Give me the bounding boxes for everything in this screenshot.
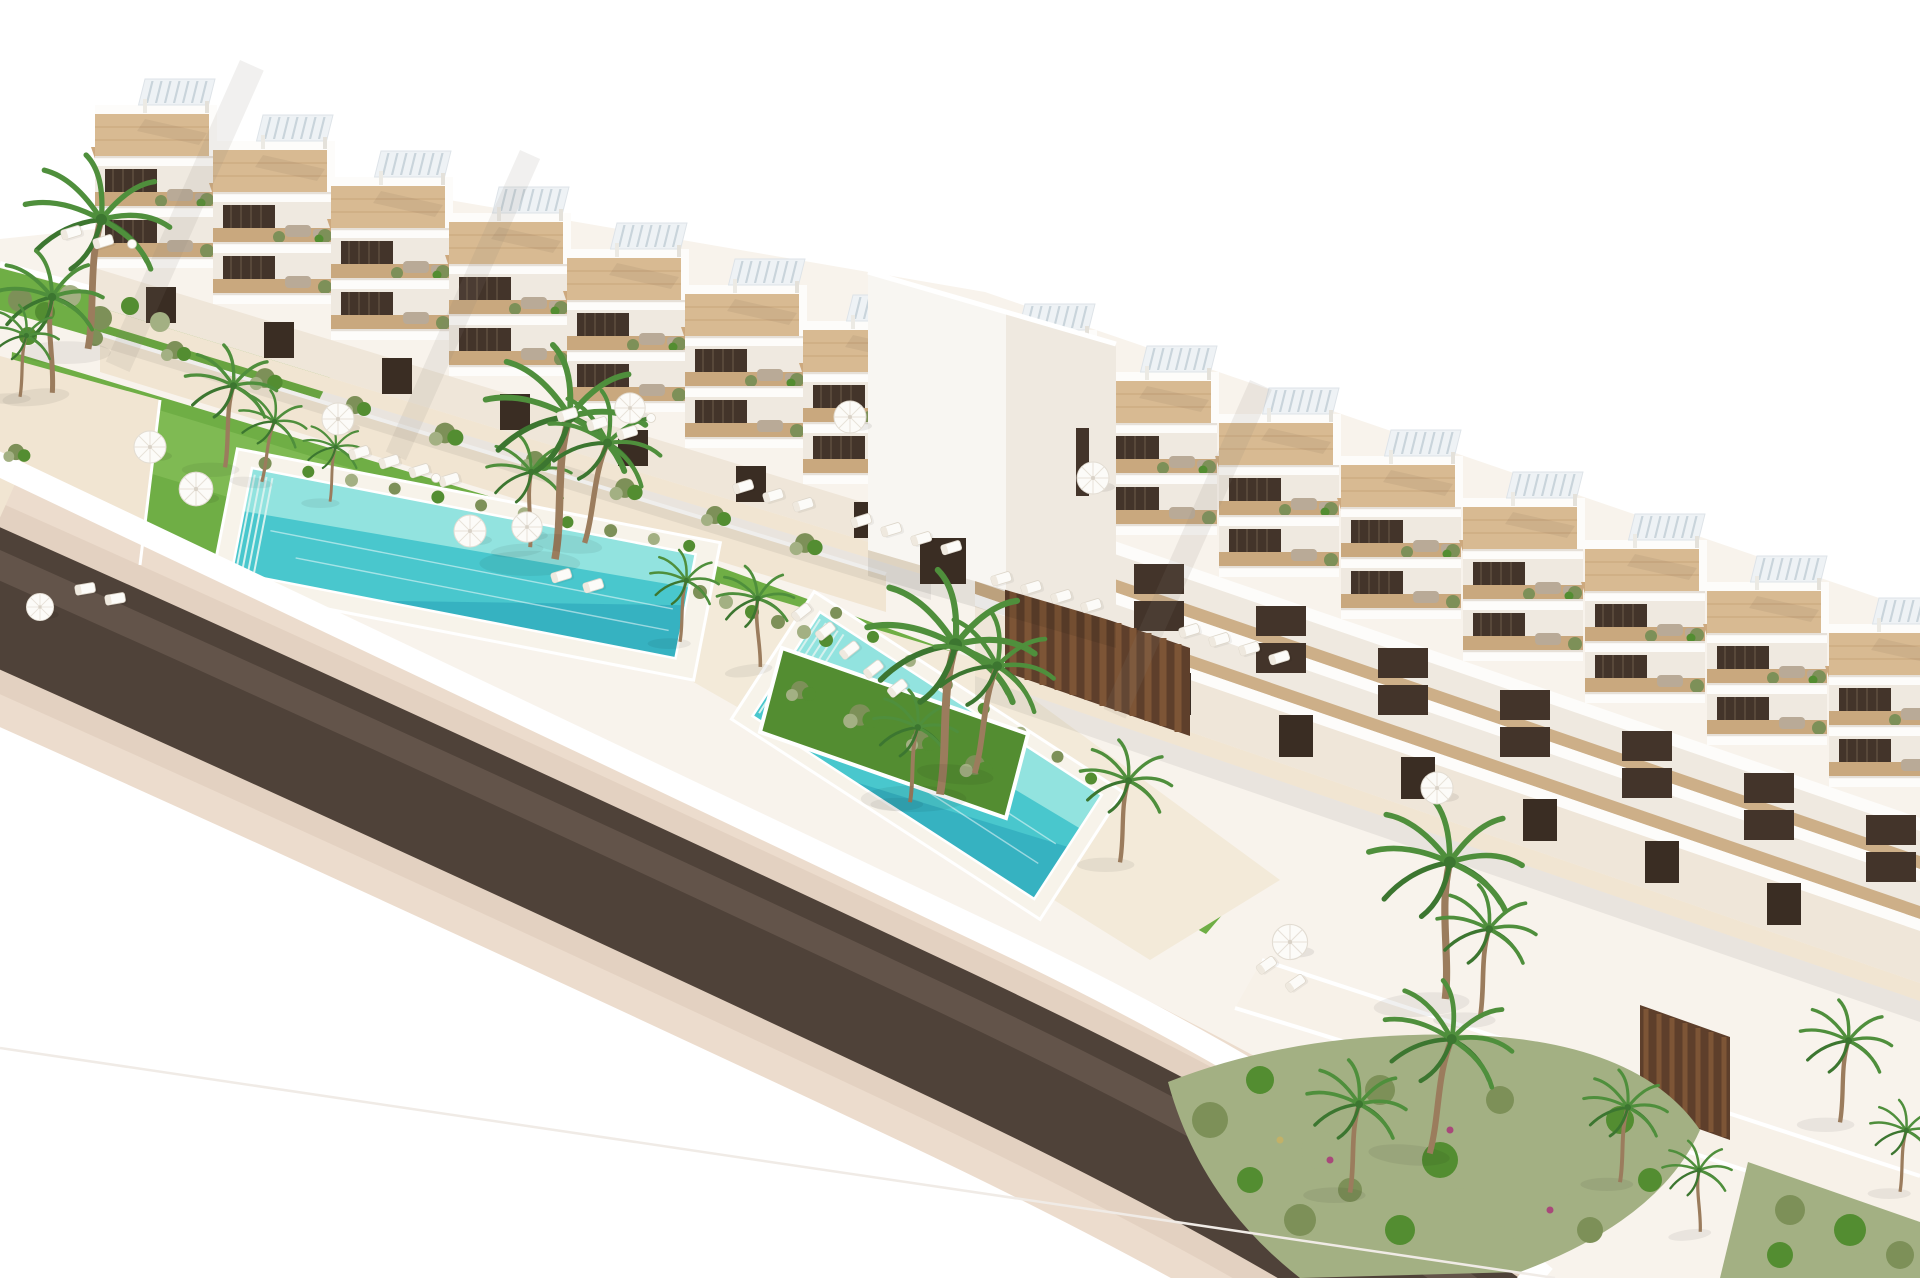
architectural-render-stage: Aerial rendering of a white terraced apa… <box>0 0 1920 1278</box>
apartment-unit <box>1337 430 1463 619</box>
side-table <box>128 240 137 249</box>
apartment-unit <box>563 223 689 412</box>
apartment-unit <box>1825 598 1920 787</box>
apartment-unit <box>1581 514 1707 703</box>
architectural-render <box>0 0 1920 1278</box>
apartment-unit <box>327 151 453 340</box>
apartment-unit <box>1703 556 1829 745</box>
apartment-unit <box>681 259 807 448</box>
apartment-unit <box>1459 472 1585 661</box>
side-table <box>647 414 656 423</box>
side-table <box>432 474 441 483</box>
